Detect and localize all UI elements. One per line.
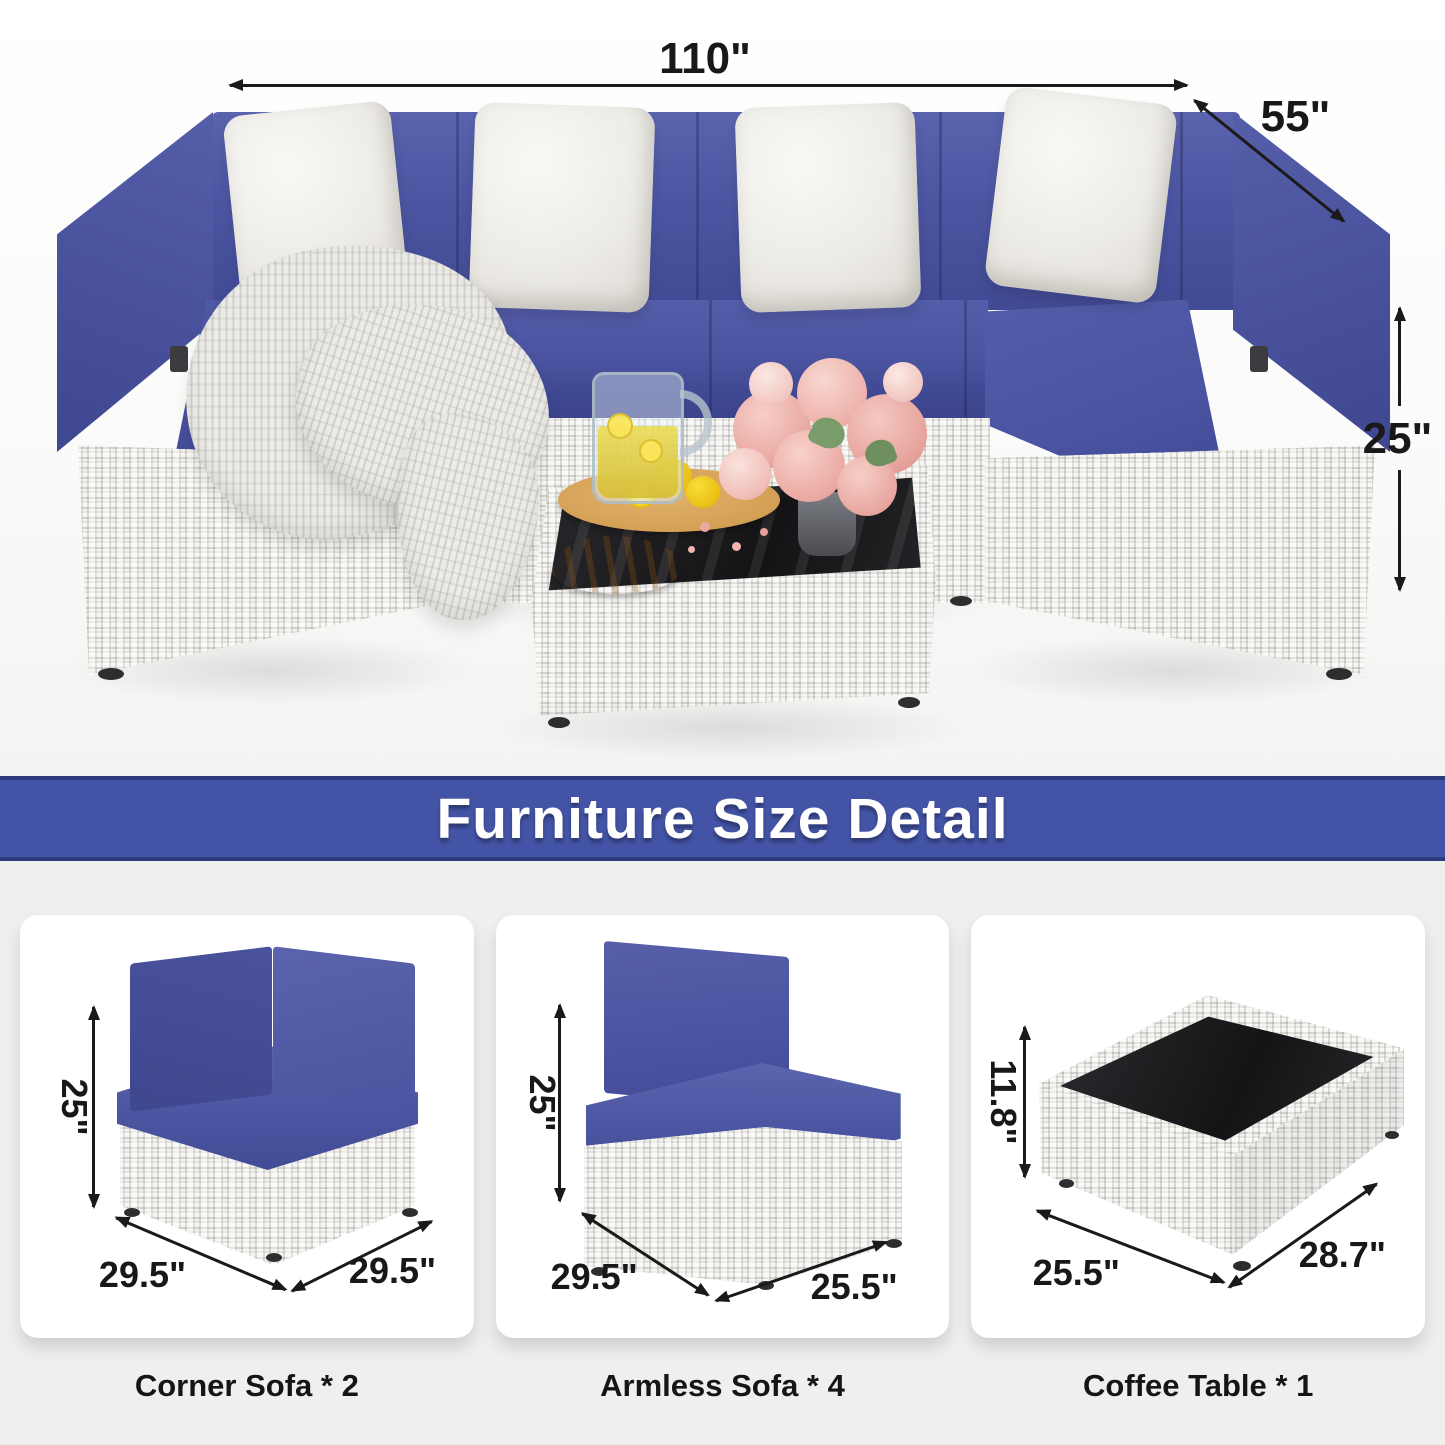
throw-pillow: [734, 102, 921, 313]
overall-height-dimension-label: 25": [1350, 416, 1445, 462]
blossom-sprig: [700, 522, 710, 532]
width-dimension-label: 28.7": [1267, 1235, 1417, 1275]
corner-sofa-backrest-right: [273, 946, 415, 1111]
sofa-foot: [266, 1253, 282, 1262]
blossom-sprig: [688, 546, 695, 553]
lemon-slice: [639, 439, 663, 463]
hero-photo: 110" 55" 25": [0, 0, 1445, 776]
overall-height-dimension-arrow-bottom: [1398, 470, 1401, 590]
throw-pillow: [983, 85, 1178, 304]
frame-clip: [170, 346, 188, 372]
depth-dimension-label: 29.5": [70, 1255, 215, 1295]
overall-width-dimension-label: 110": [640, 36, 770, 82]
sofa-foot: [98, 668, 124, 680]
overall-width-dimension-arrow: [230, 84, 1187, 87]
table-foot: [1233, 1261, 1251, 1271]
overall-depth-dimension-label: 55": [1238, 94, 1353, 140]
corner-sofa-caption: Corner Sofa * 2: [20, 1368, 474, 1404]
card-captions-row: Corner Sofa * 2 Armless Sofa * 4 Coffee …: [20, 1368, 1425, 1404]
size-detail-section: 25" 29.5" 29.5" 25" 29.5" 25.5": [0, 861, 1445, 1445]
sofa-foot: [1326, 668, 1352, 680]
coffee-table-card: 11.8" 25.5" 28.7": [971, 915, 1425, 1338]
height-dimension-label: 11.8": [983, 1052, 1023, 1152]
flower-bouquet: [715, 352, 925, 542]
throw-pillow: [468, 102, 655, 313]
flower: [749, 362, 793, 406]
height-dimension-label: 25": [54, 1061, 94, 1153]
sofa-foot: [950, 596, 972, 606]
lemonade: [598, 426, 678, 498]
coffee-table-caption: Coffee Table * 1: [971, 1368, 1425, 1404]
cushion-seam: [1180, 112, 1183, 310]
blossom-sprig: [760, 528, 768, 536]
banner-title: Furniture Size Detail: [436, 786, 1008, 852]
cushion-seam: [964, 300, 967, 422]
width-dimension-label: 29.5": [320, 1251, 465, 1291]
sofa-foot: [402, 1208, 418, 1217]
blossom-sprig: [732, 542, 741, 551]
frame-clip: [1250, 346, 1268, 372]
height-dimension-label: 25": [522, 1057, 562, 1149]
lemon-slice: [607, 413, 633, 439]
cushion-seam: [709, 300, 712, 422]
flower: [883, 362, 923, 402]
section-banner: Furniture Size Detail: [0, 776, 1445, 861]
table-foot: [548, 717, 570, 728]
table-foot: [898, 697, 920, 708]
overall-height-dimension-arrow-top: [1398, 308, 1401, 406]
width-dimension-label: 25.5": [782, 1267, 927, 1307]
right-corner-backrest: [1233, 112, 1390, 452]
corner-sofa-backrest-left: [130, 946, 272, 1111]
armless-sofa-card: 25" 29.5" 25.5": [496, 915, 950, 1338]
cushion-seam: [696, 112, 699, 310]
table-foot: [1059, 1179, 1074, 1188]
table-foot: [1385, 1131, 1399, 1139]
depth-dimension-label: 29.5": [522, 1257, 667, 1297]
flower: [837, 456, 897, 516]
depth-dimension-label: 25.5": [1001, 1253, 1151, 1293]
armless-sofa-caption: Armless Sofa * 4: [496, 1368, 950, 1404]
lemonade-pitcher: [592, 372, 684, 504]
product-infographic: 110" 55" 25" Furniture Size Detail 25": [0, 0, 1445, 1445]
corner-sofa-card: 25" 29.5" 29.5": [20, 915, 474, 1338]
cards-row: 25" 29.5" 29.5" 25" 29.5" 25.5": [20, 915, 1425, 1338]
cushion-seam: [939, 112, 942, 310]
flower: [719, 448, 771, 500]
